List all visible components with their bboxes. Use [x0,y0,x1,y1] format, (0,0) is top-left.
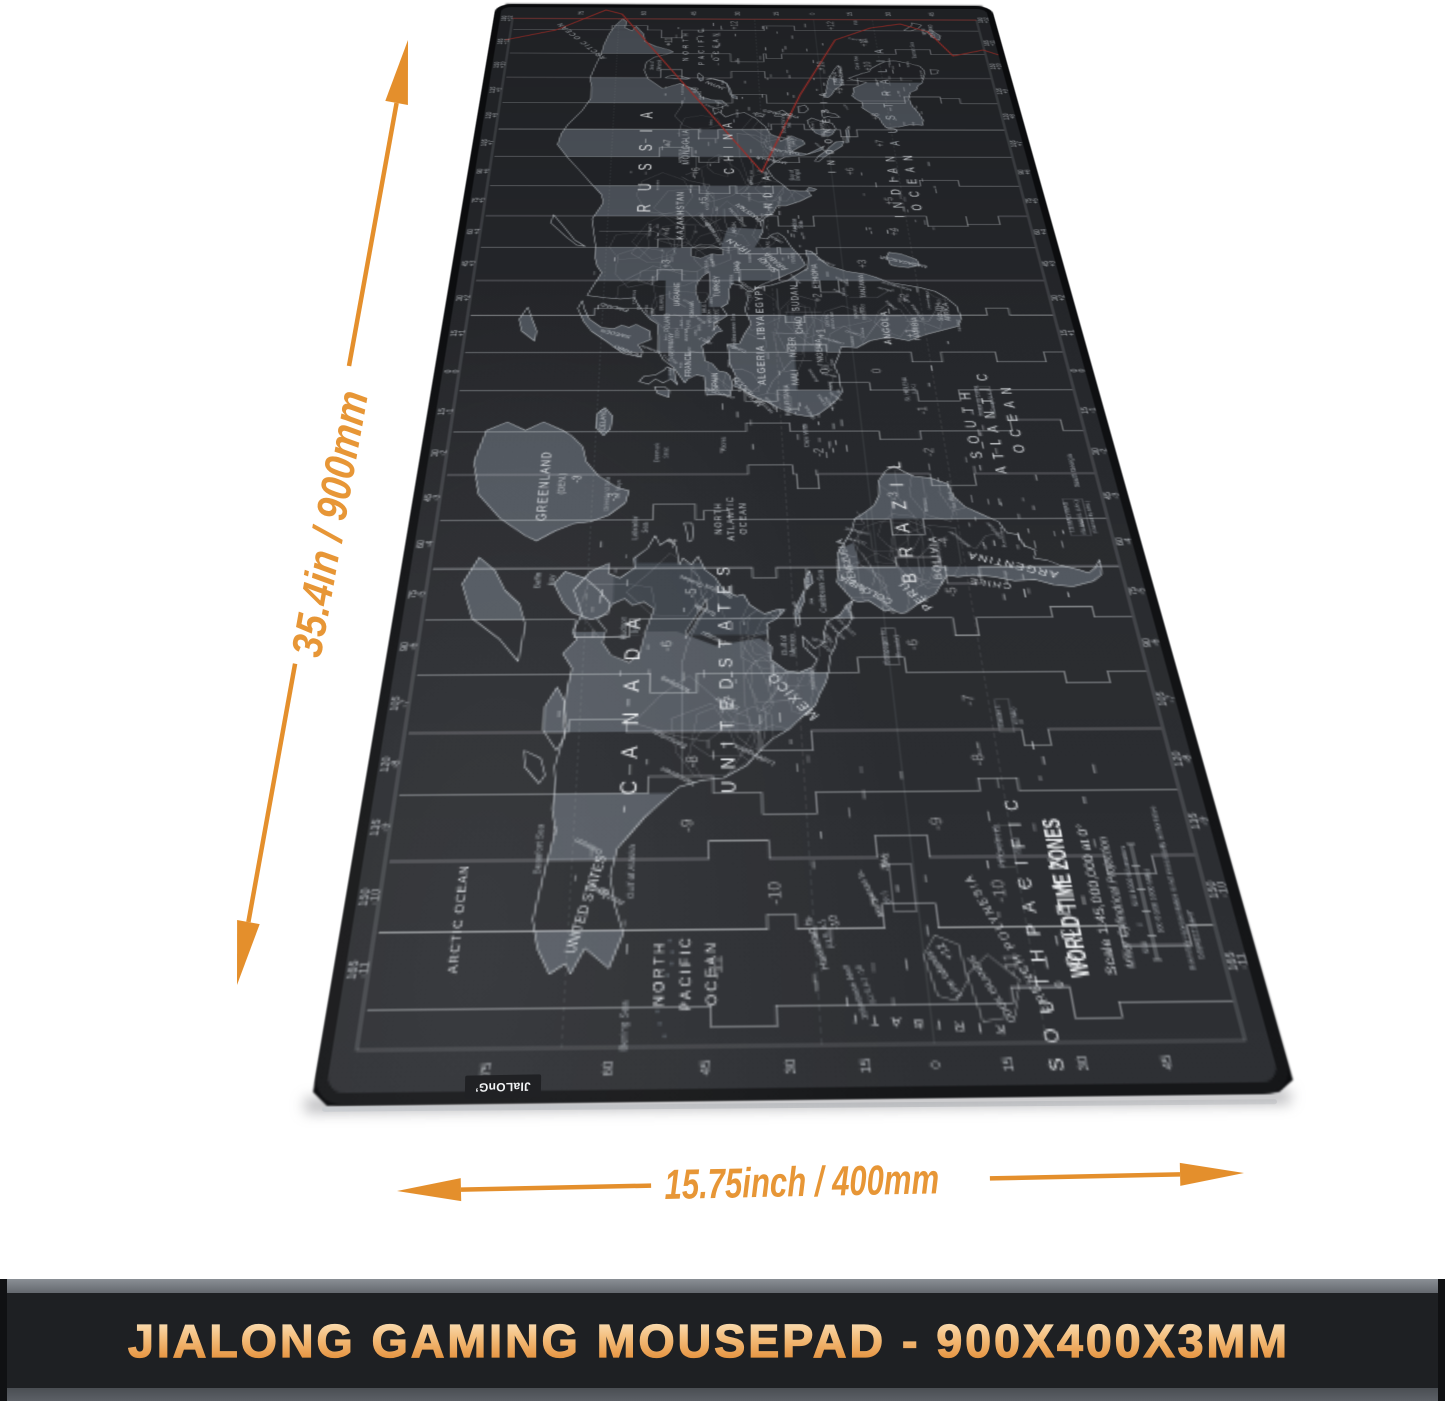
svg-text:Bengal: Bengal [793,169,801,180]
svg-text:+5: +5 [697,196,710,204]
svg-text:Rabat: Rabat [738,385,743,392]
svg-text:-10: -10 [765,881,786,905]
svg-text:New Delhi: New Delhi [747,191,752,201]
svg-text:+4: +4 [660,227,673,235]
svg-text:30: 30 [884,12,893,17]
svg-text:Lima: Lima [922,594,929,602]
svg-text:Hudson: Hudson [618,616,628,640]
svg-text:+12: +12 [825,21,837,30]
svg-text:BOS.: BOS. [696,324,702,331]
svg-text:15: 15 [846,12,855,17]
svg-text:-11: -11 [706,954,727,979]
svg-text:Sea: Sea [785,122,792,128]
svg-text:60: 60 [640,11,649,16]
svg-text:LES.: LES. [937,298,943,303]
svg-text:Mexico: Mexico [787,634,798,656]
svg-text:U.A.E.: U.A.E. [764,240,770,248]
svg-text:POLAND: POLAND [663,313,671,332]
svg-text:LATVIA: LATVIA [643,305,649,314]
svg-text:FRANCE: FRANCE [684,352,694,377]
svg-text:Perth: Perth [911,121,916,126]
svg-text:0: 0 [817,368,832,373]
svg-text:NIGER: NIGER [787,337,800,357]
svg-text:+7: +7 [873,139,886,146]
svg-text:Bering Sea: Bering Sea [617,1000,630,1051]
svg-text:EST.: EST. [635,304,641,310]
svg-text:-9: -9 [678,818,697,832]
svg-text:Gulf of Alaska: Gulf of Alaska [625,844,637,899]
svg-text:BELARUS: BELARUS [659,294,665,310]
svg-text:-4: -4 [935,537,953,547]
svg-text:Sea: Sea [641,522,650,533]
svg-text:-10: -10 [988,879,1011,903]
svg-text:-2: -2 [921,447,938,456]
svg-text:+6: +6 [844,167,858,175]
svg-text:+11: +11 [858,38,871,47]
svg-text:Beijing: Beijing [708,119,714,125]
svg-text:-2: -2 [811,447,827,456]
svg-text:NORTH: NORTH [652,941,669,1007]
svg-text:DJI.: DJI. [804,266,809,270]
svg-text:-7: -7 [959,694,979,706]
svg-text:Denmark: Denmark [652,442,661,463]
svg-text:15: 15 [858,1056,876,1073]
svg-text:-5: -5 [942,586,960,597]
svg-text:30: 30 [1074,1054,1094,1071]
svg-text:Khabarovsk: Khabarovsk [681,85,685,94]
svg-text:Istanbul: Istanbul [709,296,714,305]
svg-text:TURKEY: TURKEY [713,275,723,297]
svg-text:SUDAN: SUDAN [789,284,802,311]
svg-text:-6: -6 [658,640,675,652]
svg-text:TAJ.: TAJ. [714,206,720,211]
svg-text:LIBYA: LIBYA [754,315,768,340]
svg-text:-1: -1 [915,406,931,415]
svg-text:Moscow: Moscow [649,276,655,285]
svg-text:Bay: Bay [630,621,640,634]
svg-text:SYRIA: SYRIA [728,274,734,284]
svg-text:Caracas: Caracas [835,558,842,571]
svg-text:Baghdad: Baghdad [735,260,740,269]
svg-text:+9: +9 [833,87,846,94]
svg-text:Shanghai: Shanghai [734,109,740,117]
svg-text:ISR.: ISR. [738,283,744,288]
svg-text:+1: +1 [903,328,919,338]
svg-text:I N D I A: I N D I A [759,174,776,216]
svg-text:30: 30 [783,1057,800,1074]
svg-text:Tokyo: Tokyo [720,80,725,85]
svg-text:LITH.: LITH. [650,308,656,315]
svg-text:London: London [668,366,673,375]
svg-text:BRUNEI: BRUNEI [812,123,815,130]
svg-text:+3: +3 [659,259,673,268]
svg-text:BHU.: BHU. [750,170,754,175]
svg-text:NEW: NEW [920,28,928,35]
svg-text:FIJI: FIJI [852,21,859,25]
svg-text:YEMEN: YEMEN [790,252,797,264]
svg-text:JAM.: JAM. [809,597,815,605]
svg-text:15: 15 [772,11,781,16]
svg-text:+2: +2 [810,293,825,302]
svg-text:0: 0 [869,368,884,373]
svg-text:Azores: Azores [719,437,728,451]
svg-text:45: 45 [1158,1053,1178,1070]
svg-text:Bangkok: Bangkok [788,147,793,155]
svg-text:-3: -3 [570,475,584,483]
svg-text:+8: +8 [869,113,882,120]
svg-text:-6: -6 [904,638,923,650]
svg-text:KUWAIT: KUWAIT [747,252,753,262]
svg-text:Novosibirsk: Novosibirsk [656,179,660,190]
svg-text:Cairo: Cairo [748,292,753,298]
svg-text:+5: +5 [882,197,896,205]
svg-text:-8: -8 [683,755,701,768]
svg-text:0: 0 [928,1059,946,1068]
svg-text:60: 60 [601,1059,618,1076]
svg-text:Nairobi: Nairobi [845,278,850,286]
svg-text:Sea: Sea [796,221,804,228]
svg-text:Strait: Strait [661,446,670,458]
svg-text:45: 45 [927,12,936,17]
svg-text:+12: +12 [729,21,741,30]
svg-text:Jakarta: Jakarta [841,136,846,142]
svg-text:SWITZ.: SWITZ. [686,346,692,356]
svg-text:-7: -7 [721,695,739,707]
svg-text:Seoul: Seoul [716,102,720,107]
svg-text:(DEN.): (DEN.) [557,473,569,494]
svg-text:+6: +6 [690,167,703,175]
svg-text:Kolkata: Kolkata [764,171,769,178]
svg-text:Algiers: Algiers [727,359,732,368]
svg-text:R U S S I A: R U S S I A [633,108,657,213]
svg-text:AFGH.: AFGH. [730,221,738,233]
svg-text:0: 0 [809,12,818,14]
svg-text:ICELAND: ICELAND [598,408,608,431]
svg-text:St.Petersburg: St.Petersburg [632,289,637,304]
svg-text:0: 0 [1054,981,1069,988]
svg-text:AZERB.: AZERB. [709,253,715,263]
svg-text:SLVK.: SLVK. [678,319,684,326]
svg-text:Sea of: Sea of [649,61,656,70]
svg-text:KAZAKHSTAN: KAZAKHSTAN [675,191,687,240]
svg-text:Bogota: Bogota [859,583,866,595]
svg-text:+8: +8 [783,113,796,120]
svg-text:+10: +10 [861,61,874,71]
svg-text:-9: -9 [926,816,947,830]
svg-text:Madrid: Madrid [713,376,718,385]
svg-text:+10: +10 [815,61,828,71]
svg-text:Tehran: Tehran [727,246,732,253]
svg-text:Mumbai: Mumbai [777,201,782,209]
svg-text:-3: -3 [885,491,902,501]
svg-text:Berlin: Berlin [664,334,669,341]
svg-text:-5: -5 [683,587,700,598]
svg-text:-1: -1 [787,406,803,415]
svg-text:+1: +1 [814,328,829,338]
svg-text:C H I N A: C H I N A [721,121,738,174]
svg-text:-3: -3 [605,492,621,502]
svg-text:+9: +9 [689,87,701,94]
svg-text:HUNG.: HUNG. [685,319,691,329]
svg-text:ATLANTIC: ATLANTIC [726,496,738,541]
svg-text:+4: +4 [887,227,901,235]
svg-text:NORTH: NORTH [714,502,725,534]
svg-text:75: 75 [577,11,586,16]
svg-text:N.MACEDONIA: N.MACEDONIA [707,309,712,326]
svg-text:-8: -8 [968,753,988,766]
svg-text:Baffin: Baffin [532,571,543,588]
svg-text:Rome: Rome [707,336,712,343]
svg-text:Lagos: Lagos [829,358,835,366]
svg-text:Paris: Paris [679,361,684,368]
svg-text:15: 15 [1000,1055,1019,1072]
svg-text:P A C I F I C: P A C I F I C [697,29,706,65]
svg-text:30: 30 [734,11,743,16]
svg-text:+3: +3 [855,259,870,268]
svg-text:UKRAINE: UKRAINE [674,282,683,306]
svg-text:CAMB.: CAMB. [790,140,796,147]
svg-text:JIALONG GAMING MOUSEPAD - 900X: JIALONG GAMING MOUSEPAD - 900X400X3MM [128,1315,1290,1367]
svg-text:-11: -11 [999,952,1023,976]
svg-text:-4: -4 [664,538,680,548]
svg-text:Labrador: Labrador [630,515,640,540]
svg-text:45: 45 [698,1058,715,1075]
svg-text:0: 0 [1136,922,1146,926]
svg-text:Karachi: Karachi [760,213,765,220]
svg-text:MONGOLIA: MONGOLIA [678,149,684,163]
svg-text:MALI: MALI [789,369,802,385]
svg-text:OCEAN: OCEAN [738,502,750,534]
svg-text:(U.K.): (U.K.) [910,384,918,394]
svg-text:+7: +7 [661,139,673,146]
svg-text:N O R T H: N O R T H [682,32,691,61]
svg-text:45: 45 [690,11,699,16]
svg-text:Okhotsk: Okhotsk [656,59,663,71]
svg-text:ALGERIA: ALGERIA [754,345,769,385]
svg-text:PACIFIC: PACIFIC [679,935,695,1012]
svg-text:CZECH: CZECH [674,329,680,339]
svg-text:AUSTRIA: AUSTRIA [683,328,689,341]
svg-text:Bay: Bay [547,574,557,586]
svg-text:CHAD: CHAD [794,316,806,334]
